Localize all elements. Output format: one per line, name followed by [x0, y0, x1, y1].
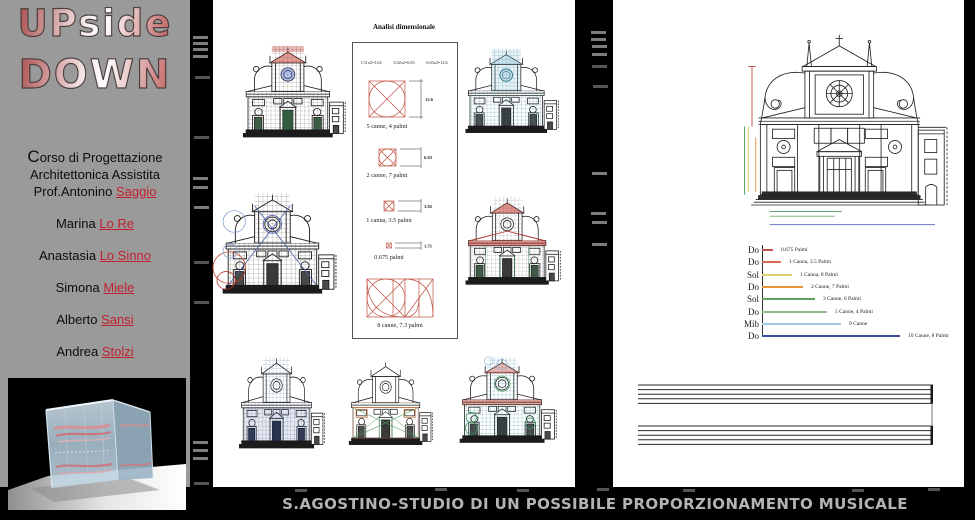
- member-link[interactable]: Sansi: [101, 312, 134, 327]
- course-line-3: Prof.Antonino Saggio: [0, 183, 190, 200]
- church-elevation-dense-overlay: [454, 356, 558, 450]
- tick-mark: [193, 42, 208, 45]
- formula-2: 3.02x2=6.03: [393, 60, 414, 65]
- tick-mark: [591, 31, 606, 34]
- tick-mark: [193, 48, 208, 51]
- member-link[interactable]: Lo Re: [99, 216, 134, 231]
- note-row: Do 5 Canne, 4 Palmi: [723, 306, 873, 318]
- tick-mark: [593, 85, 608, 88]
- tick-mark: [592, 172, 607, 175]
- member-row: Simona Miele: [0, 280, 190, 295]
- tick-mark: [193, 177, 208, 180]
- member-link[interactable]: Lo Sinno: [100, 248, 151, 263]
- glass-cube-graphic: [8, 378, 186, 510]
- dim-label: 1.51: [424, 244, 433, 249]
- tick-mark: [194, 136, 209, 139]
- course-line-1: Corso di Progettazione: [0, 148, 190, 166]
- tick-mark: [852, 489, 864, 492]
- tick-mark: [194, 206, 209, 209]
- tick-mark: [592, 65, 607, 68]
- tick-mark: [591, 212, 606, 215]
- tick-mark: [193, 449, 208, 452]
- member-row: Andrea Stolzi: [0, 344, 190, 359]
- note-row: Sol 3 Canne, 6 Palmi: [723, 293, 861, 305]
- professor-link[interactable]: Saggio: [116, 184, 156, 199]
- formula-3: 6.03x2=12.6: [426, 60, 447, 65]
- church-elevation-navy-grid: [234, 356, 326, 456]
- dim-label: 6.03: [424, 155, 433, 160]
- church-elevation-grid-red: [237, 45, 347, 145]
- church-elevation-circles: [216, 192, 338, 302]
- tick-mark: [592, 243, 607, 246]
- tick-mark: [591, 38, 606, 41]
- music-staves: [637, 383, 949, 447]
- logo: UPside DOWN: [0, 2, 190, 99]
- tick-mark: [928, 488, 940, 491]
- tick-mark: [683, 489, 695, 492]
- tick-mark: [592, 45, 607, 48]
- church-elevation-green-diagonals: [344, 360, 434, 452]
- formula-1: 1.51x2=3.02: [360, 60, 381, 65]
- tick-mark: [194, 261, 209, 264]
- note-length-bar: [762, 261, 781, 263]
- note-length-bar: [762, 311, 827, 313]
- tick-mark: [193, 457, 208, 460]
- item-label: 2 canne, 7 palmi: [367, 172, 408, 179]
- course-line-2: Architettonica Assistita: [0, 166, 190, 183]
- tick-mark: [194, 482, 209, 485]
- note-length-bar: [762, 335, 900, 337]
- member-link[interactable]: Stolzi: [102, 344, 134, 359]
- item-label: 1 canna, 3.5 palmi: [366, 217, 412, 224]
- glass-cube-render-image: [8, 378, 186, 510]
- member-row: Marina Lo Re: [0, 216, 190, 231]
- church-elevation-teal-grid: [460, 48, 560, 140]
- member-row: Anastasia Lo Sinno: [0, 248, 190, 263]
- note-length-bar: [762, 286, 803, 288]
- analysis-box: 1.51x2=3.02 3.02x2=6.03 6.03x2=12.6 12.6: [352, 42, 458, 339]
- note-length-bar: [762, 323, 841, 325]
- tick-mark: [194, 301, 209, 304]
- tick-mark: [592, 221, 607, 224]
- musical-proportion-panel: Do 0.675 Palmi Do 1 Canna, 3.5 Palmi Sol…: [613, 0, 964, 487]
- logo-line-1: UPside: [0, 2, 190, 46]
- analysis-box-title: Analisi dimensionale: [352, 23, 456, 31]
- member-row: Alberto Sansi: [0, 312, 190, 327]
- church-elevation-red-bands: [460, 196, 562, 292]
- note-length-bar: [762, 274, 792, 276]
- tick-mark: [193, 441, 208, 444]
- tick-mark: [592, 53, 607, 56]
- tick-mark: [193, 186, 208, 189]
- note-row: Do 10 Canne, 8 Palmi: [723, 330, 949, 342]
- tick-mark: [193, 36, 208, 39]
- elevation-studies-panel: Analisi dimensionale 1.51x2=3.02 3.02x2=…: [213, 0, 575, 487]
- tick-mark: [435, 488, 447, 491]
- note-row: Do 1 Canna, 3.5 Palmi: [723, 256, 831, 268]
- tick-mark: [193, 55, 208, 58]
- dim-label: 12.6: [425, 97, 434, 102]
- analysis-diagram: 1.51x2=3.02 3.02x2=6.03 6.03x2=12.6 12.6: [353, 43, 457, 338]
- note-row: Sol 1 Canna, 8 Palmi: [723, 269, 838, 281]
- note-length-bar: [762, 298, 815, 300]
- tick-mark: [295, 489, 307, 492]
- course-info: Corso di Progettazione Architettonica As…: [0, 148, 190, 200]
- item-label: 0.675 palmi: [374, 254, 404, 261]
- tick-mark: [195, 76, 210, 79]
- tick-mark: [517, 489, 529, 492]
- dim-label: 3.02: [424, 204, 433, 209]
- facade-elevation-drawing: [700, 15, 960, 249]
- note-row: Do 0.675 Palmi: [723, 244, 808, 256]
- slide: UPside DOWN Corso di Progettazione Archi…: [0, 0, 975, 520]
- member-link[interactable]: Miele: [103, 280, 134, 295]
- note-length-bar: [762, 249, 773, 251]
- logo-line-2: DOWN: [0, 51, 190, 99]
- tick-mark: [597, 488, 609, 491]
- note-row: Do 2 Canne, 7 Palmi: [723, 281, 849, 293]
- note-row: Mib 9 Canne: [723, 318, 867, 330]
- item-label: 8 canne, 7.3 palmi: [377, 322, 423, 329]
- item-label: 5 canne, 4 palmi: [367, 123, 408, 130]
